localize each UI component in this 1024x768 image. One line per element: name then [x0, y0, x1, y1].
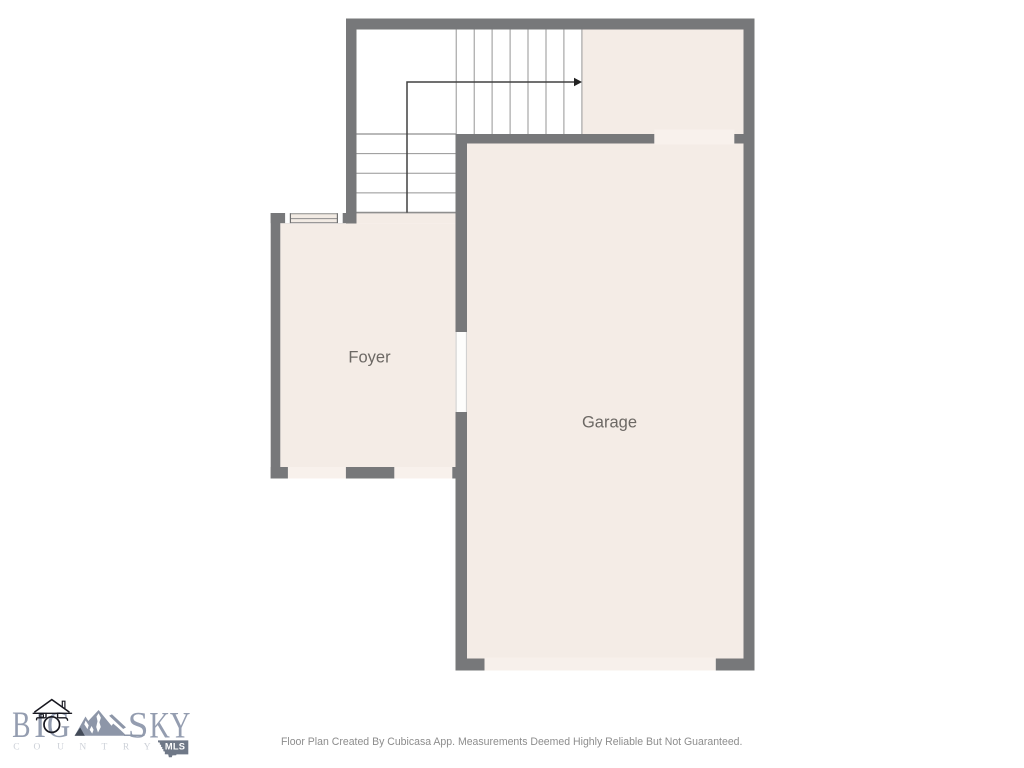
svg-text:R: R: [123, 742, 130, 752]
svg-text:Foyer: Foyer: [348, 349, 391, 367]
svg-text:O: O: [33, 742, 40, 752]
svg-text:Y: Y: [144, 742, 151, 752]
svg-text:S: S: [128, 704, 148, 745]
svg-text:U: U: [57, 742, 64, 752]
svg-text:N: N: [79, 742, 86, 752]
svg-text:Floor Plan Created By Cubicasa: Floor Plan Created By Cubicasa App. Meas…: [281, 736, 743, 748]
svg-text:K: K: [149, 704, 170, 745]
svg-text:MLS: MLS: [165, 742, 185, 752]
svg-text:T: T: [101, 742, 107, 752]
svg-text:Garage: Garage: [582, 414, 637, 432]
svg-text:C: C: [13, 742, 19, 752]
svg-text:Y: Y: [170, 704, 191, 745]
svg-text:B: B: [12, 704, 30, 745]
